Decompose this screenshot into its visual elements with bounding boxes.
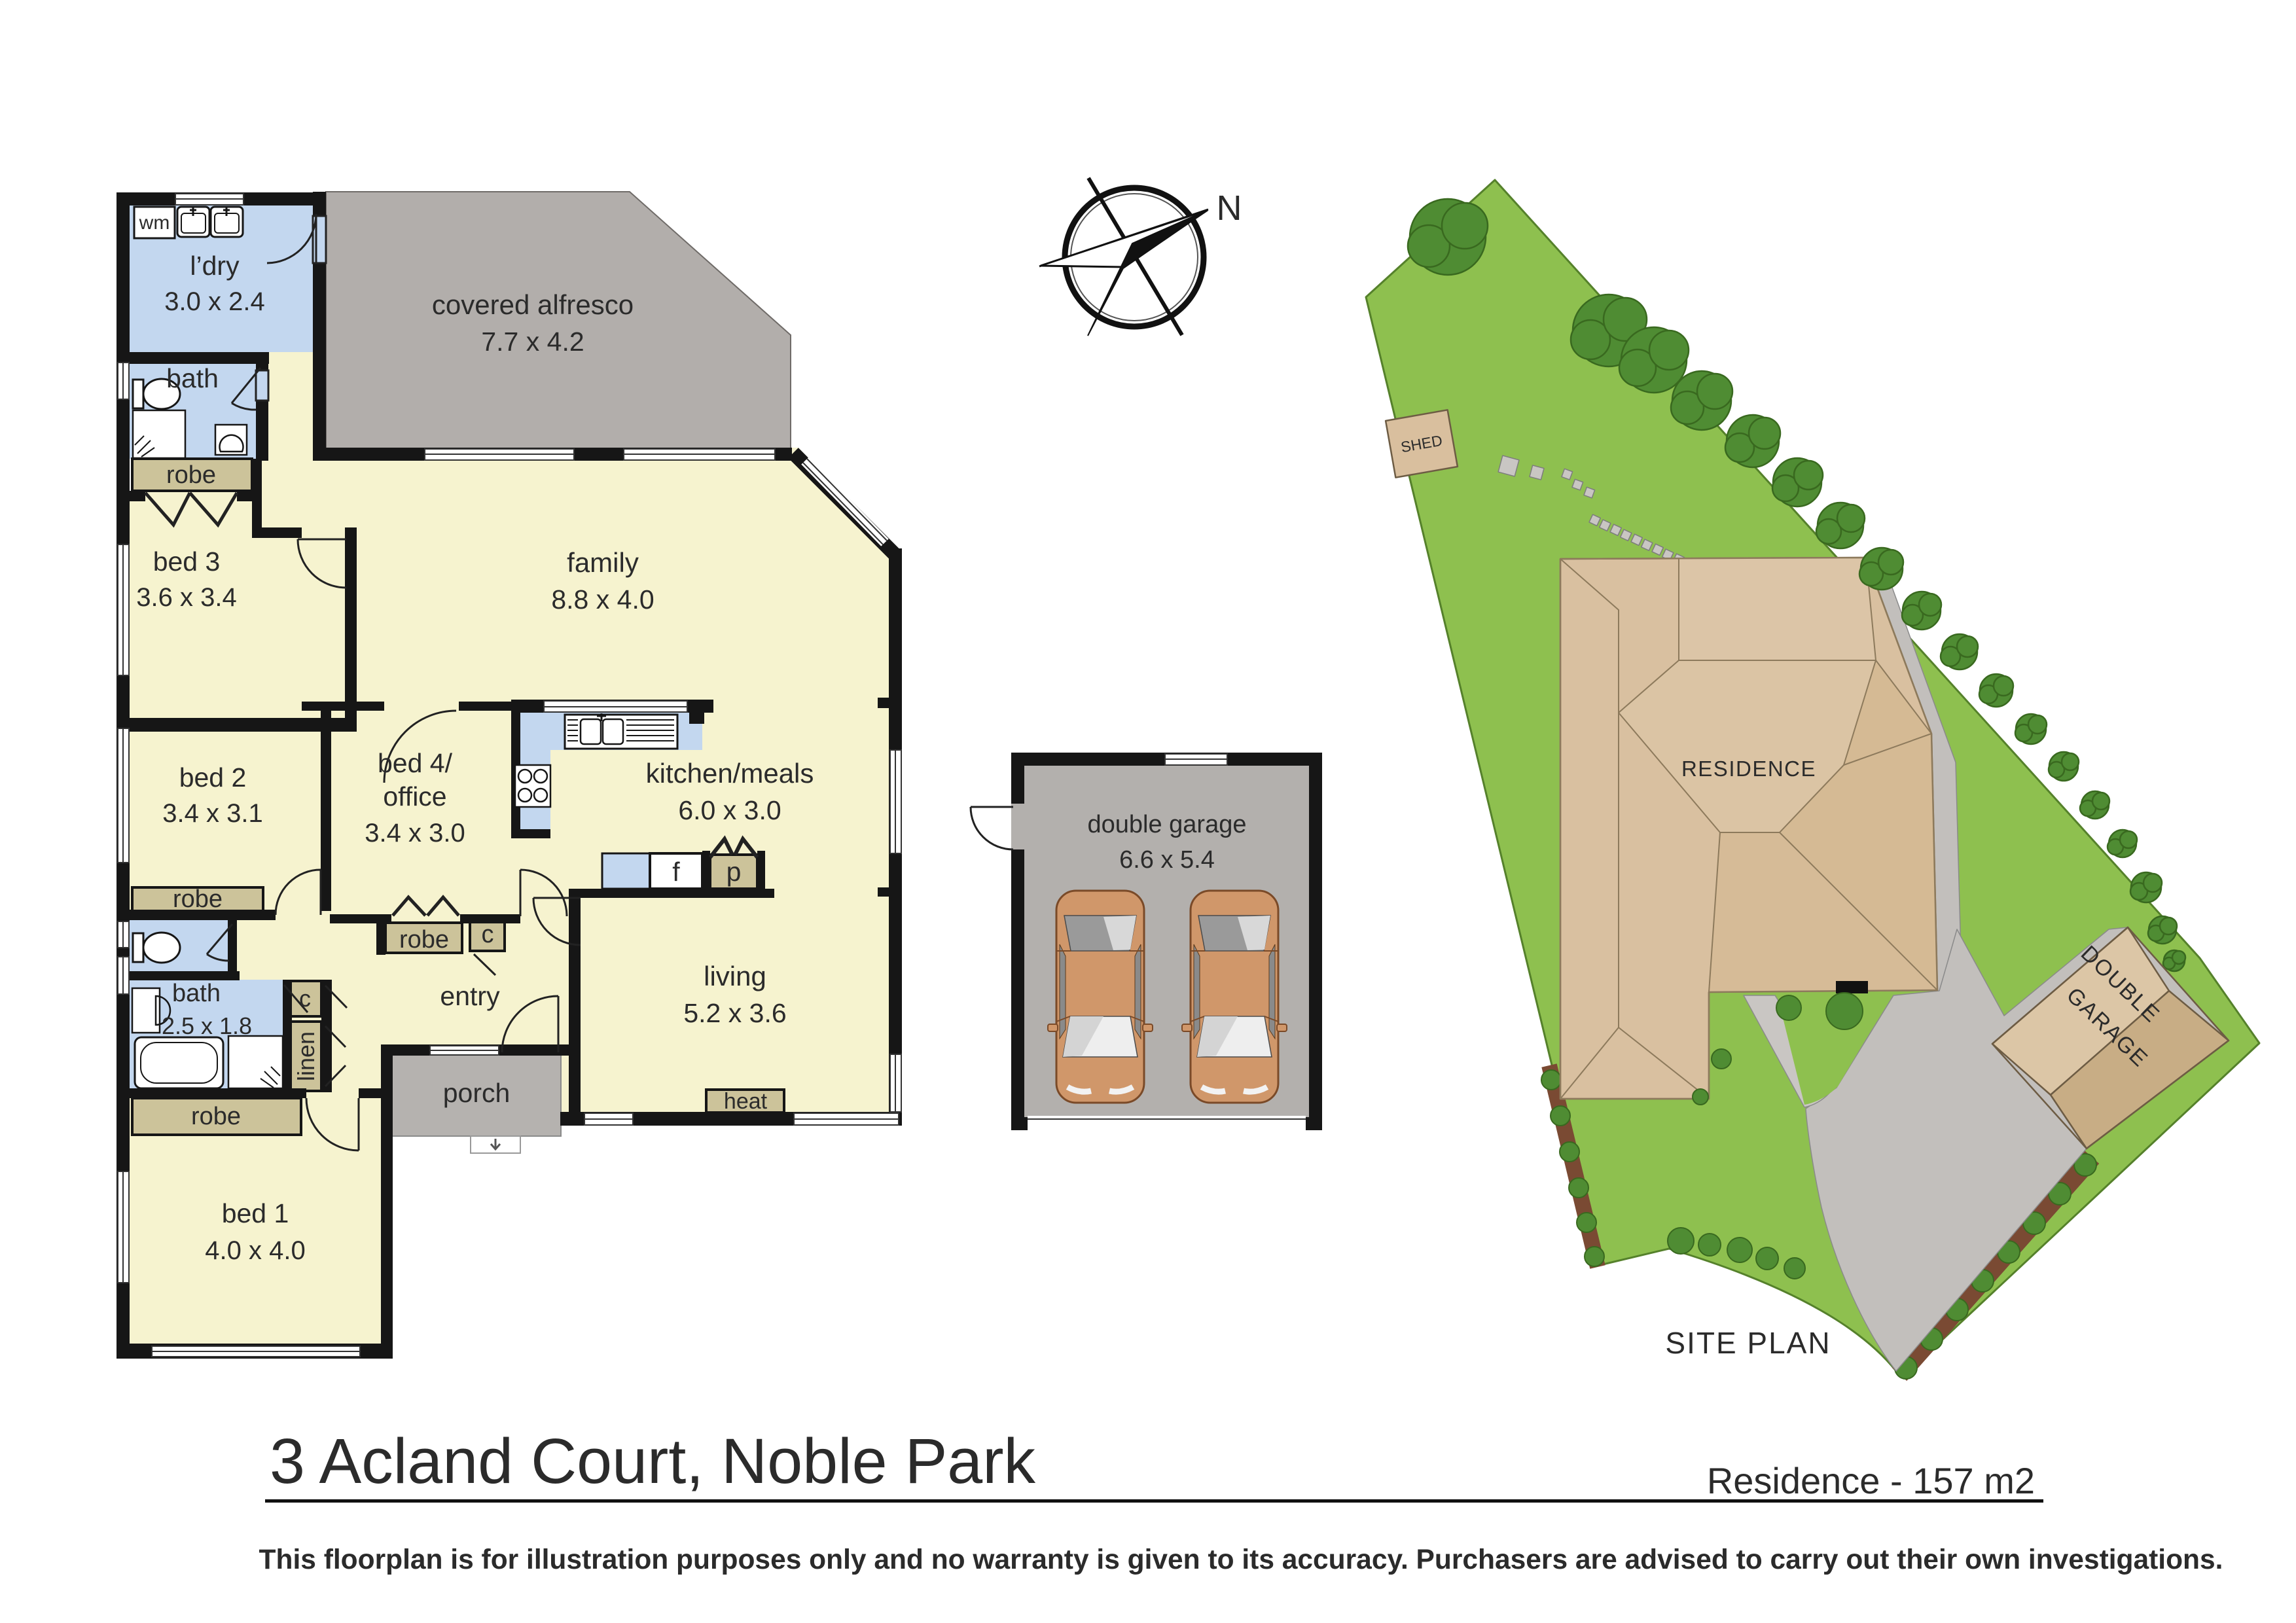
svg-text:Residence - 157 m2: Residence - 157 m2: [1707, 1460, 2035, 1501]
svg-text:robe: robe: [166, 461, 216, 489]
svg-text:f: f: [672, 857, 680, 887]
svg-text:wm: wm: [139, 212, 170, 234]
svg-text:kitchen/meals: kitchen/meals: [646, 758, 814, 789]
svg-text:This floorplan is for illustra: This floorplan is for illustration purpo…: [259, 1544, 2223, 1575]
svg-text:bed 2: bed 2: [179, 762, 247, 793]
svg-text:8.8 x 4.0: 8.8 x 4.0: [551, 584, 654, 615]
svg-text:3.4 x 3.0: 3.4 x 3.0: [365, 819, 465, 847]
svg-text:living: living: [704, 961, 766, 991]
svg-text:bath: bath: [166, 363, 219, 393]
svg-text:robe: robe: [191, 1103, 241, 1130]
svg-text:3.0 x 2.4: 3.0 x 2.4: [164, 287, 264, 316]
svg-text:N: N: [1217, 188, 1242, 228]
svg-text:office: office: [383, 781, 446, 811]
svg-text:l’dry: l’dry: [190, 251, 240, 281]
svg-text:c: c: [299, 985, 311, 1012]
svg-text:6.0 x 3.0: 6.0 x 3.0: [678, 795, 781, 825]
svg-text:covered alfresco: covered alfresco: [432, 289, 634, 320]
svg-text:robe: robe: [173, 885, 223, 913]
svg-text:RESIDENCE: RESIDENCE: [1681, 757, 1816, 781]
svg-text:porch: porch: [443, 1078, 511, 1108]
svg-text:3.6 x 3.4: 3.6 x 3.4: [136, 583, 236, 612]
svg-text:7.7 x 4.2: 7.7 x 4.2: [481, 327, 584, 357]
svg-text:bed 3: bed 3: [153, 546, 221, 577]
svg-text:3.4 x 3.1: 3.4 x 3.1: [162, 799, 262, 828]
svg-text:6.6 x 5.4: 6.6 x 5.4: [1119, 846, 1215, 874]
svg-text:entry: entry: [440, 981, 500, 1011]
svg-text:family: family: [567, 547, 639, 578]
svg-text:linen: linen: [293, 1031, 319, 1081]
svg-text:4.0 x 4.0: 4.0 x 4.0: [205, 1236, 305, 1265]
svg-text:double garage: double garage: [1088, 811, 1247, 838]
svg-text:bed 1: bed 1: [222, 1198, 289, 1228]
svg-text:3 Acland Court, Noble Park: 3 Acland Court, Noble Park: [270, 1425, 1036, 1497]
svg-text:5.2 x 3.6: 5.2 x 3.6: [683, 998, 786, 1028]
svg-text:2.5 x 1.8: 2.5 x 1.8: [162, 1012, 252, 1039]
svg-text:SITE PLAN: SITE PLAN: [1665, 1326, 1831, 1360]
svg-text:heat: heat: [724, 1089, 768, 1114]
svg-text:robe: robe: [399, 926, 449, 954]
svg-text:p: p: [726, 857, 742, 887]
svg-text:bed 4/: bed 4/: [378, 748, 453, 778]
svg-text:c: c: [482, 921, 494, 948]
svg-text:bath: bath: [172, 980, 221, 1007]
